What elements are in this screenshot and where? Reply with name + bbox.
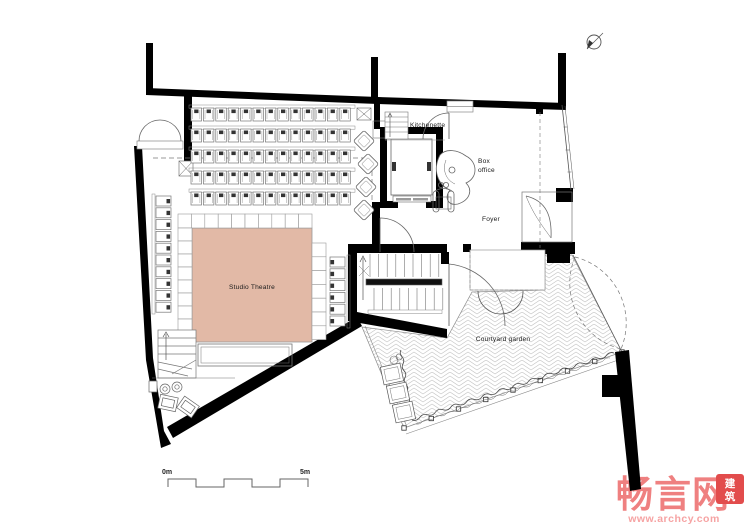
central-staircase [359, 254, 443, 314]
box-office-label-1: Box [478, 158, 490, 165]
box-office-label-2: office [478, 167, 495, 174]
wall-courtyard-right [615, 350, 641, 491]
kitchenette-label: Kitchenette [410, 122, 445, 129]
studio-theatre-label: Studio Theatre [229, 284, 275, 291]
wall-kitchen-divider [374, 99, 380, 129]
wall-stair-left [348, 244, 357, 320]
floor-plan-drawing: Studio Theatre [0, 0, 750, 530]
watermark-seal-char-1: 建 [724, 477, 736, 490]
wall-stair-top [348, 244, 447, 253]
studio-theatre-stage: Studio Theatre [192, 228, 312, 342]
kitchenette-stair [385, 112, 408, 139]
scale-start-label: 0m [162, 469, 172, 476]
wall-top-theatre [146, 88, 378, 104]
watermark-url: www.archcy.com [627, 513, 720, 525]
column-foyer-north [536, 107, 543, 114]
floor-plan-canvas: Studio Theatre [0, 0, 750, 530]
wall-top-left-stub [146, 43, 153, 90]
scale-end-label: 5m [300, 469, 310, 476]
wall-door-jamb [441, 252, 449, 264]
watermark-seal-char-2: 筑 [724, 490, 736, 503]
scale-bar: 0m 5m [162, 469, 310, 487]
courtyard-garden-label: Courtyard garden [476, 336, 531, 343]
wall-center-stub [371, 57, 378, 99]
north-arrow-icon [587, 33, 603, 49]
foyer-label: Foyer [482, 216, 500, 223]
wall-top-right-stub [558, 53, 566, 104]
wall-bay-top [556, 188, 573, 202]
